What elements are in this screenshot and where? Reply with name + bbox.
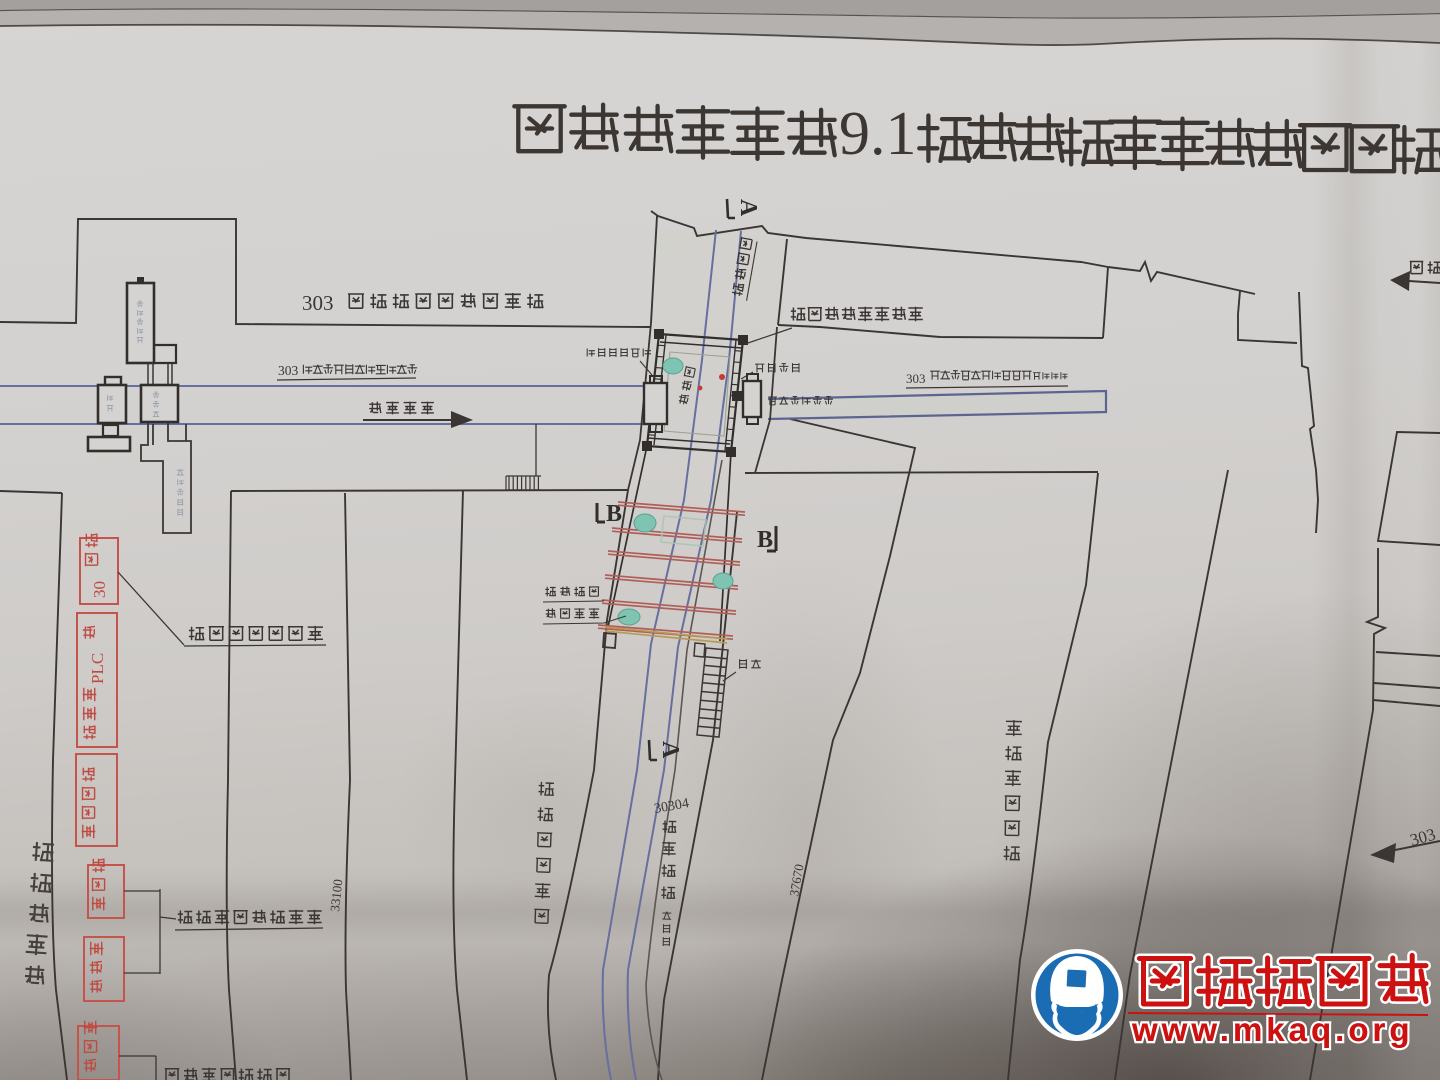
svg-text:37670: 37670 (786, 863, 806, 898)
svg-text:A: A (657, 741, 683, 759)
svg-text:30: 30 (90, 581, 109, 598)
svg-text:33100: 33100 (327, 878, 345, 912)
svg-text:B: B (757, 527, 773, 553)
svg-text:303: 303 (302, 291, 334, 315)
svg-text:303: 303 (278, 363, 299, 378)
svg-text:PLC: PLC (88, 653, 107, 684)
svg-text:www.mkaq.org: www.mkaq.org (1131, 1011, 1413, 1048)
svg-text:A: A (735, 199, 761, 217)
svg-text:9.1: 9.1 (839, 100, 917, 168)
svg-text:303: 303 (906, 371, 926, 386)
svg-text:B: B (606, 501, 622, 527)
svg-text:303: 303 (1408, 825, 1438, 850)
